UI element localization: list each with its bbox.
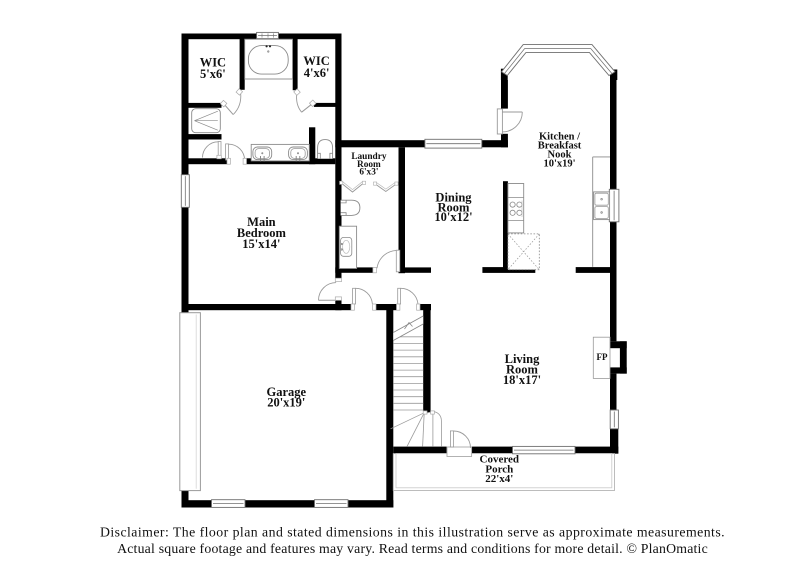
svg-text:10'x12': 10'x12' xyxy=(434,210,472,224)
svg-text:Actual square footage and feat: Actual square footage and features may v… xyxy=(117,541,708,556)
svg-text:10'x19': 10'x19' xyxy=(543,159,575,170)
svg-text:Disclaimer: The floor plan and: Disclaimer: The floor plan and stated di… xyxy=(100,525,725,540)
svg-text:15'x14': 15'x14' xyxy=(242,237,280,251)
svg-text:22'x4': 22'x4' xyxy=(485,473,513,485)
svg-text:18'x17': 18'x17' xyxy=(503,373,541,387)
svg-text:20'x19': 20'x19' xyxy=(267,396,305,410)
svg-text:6'x3': 6'x3' xyxy=(359,167,378,177)
svg-text:4'x6': 4'x6' xyxy=(304,66,330,80)
svg-text:5'x6': 5'x6' xyxy=(200,67,226,81)
svg-text:FP: FP xyxy=(597,352,608,362)
